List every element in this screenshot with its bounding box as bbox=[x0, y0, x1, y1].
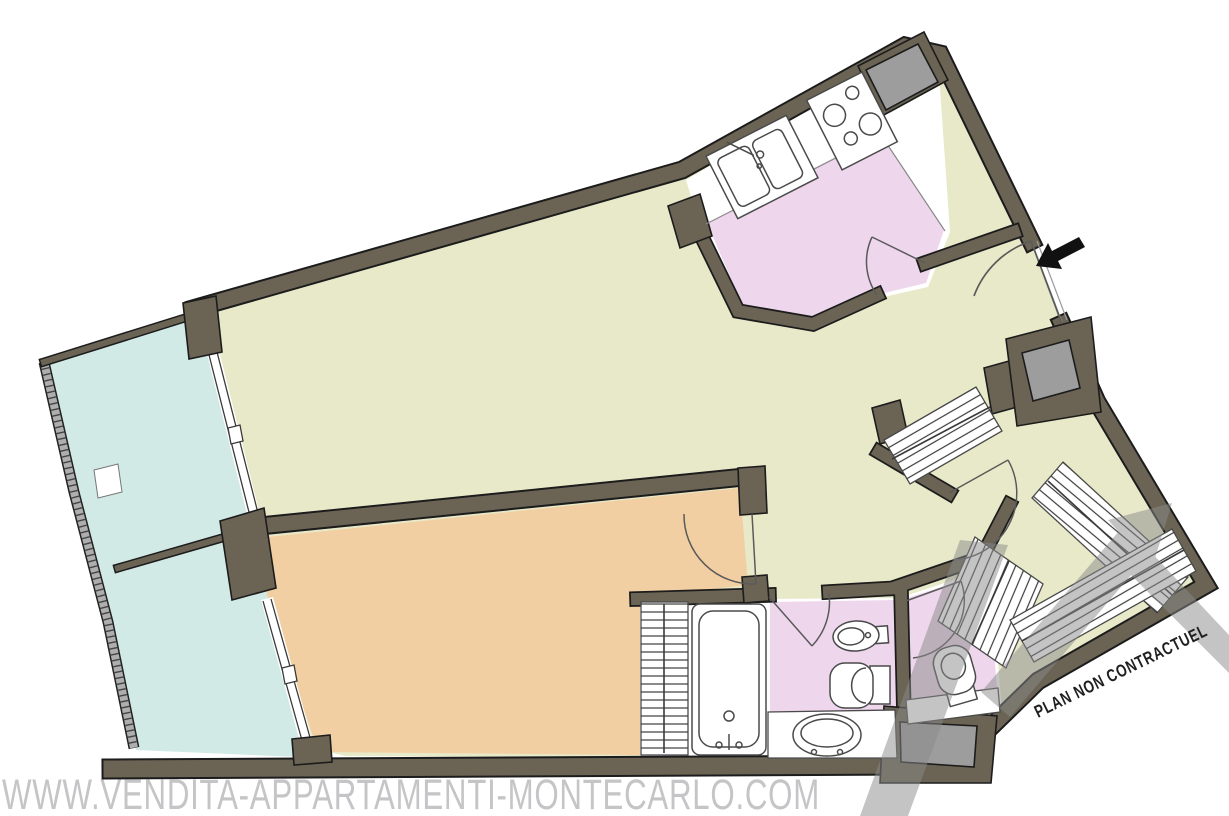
pillar-top-left bbox=[183, 296, 222, 359]
floor-plan-page: PLAN NON CONTRACTUEL WWW.VENDITA-APPARTA… bbox=[0, 0, 1229, 816]
floor-plan-drawing: PLAN NON CONTRACTUEL WWW.VENDITA-APPARTA… bbox=[0, 0, 1229, 816]
washbasin-icon bbox=[768, 710, 897, 758]
toilet-icon bbox=[830, 663, 890, 708]
bathtub-icon bbox=[692, 604, 766, 755]
pillar-bedroom-door-top bbox=[738, 466, 767, 515]
bathtub-outer bbox=[692, 604, 766, 755]
living-window-latch bbox=[228, 425, 243, 444]
bedroom-window-latch bbox=[282, 665, 297, 684]
watermark-url-text: WWW.VENDITA-APPARTAMENTI-MONTECARLO.COM bbox=[2, 771, 820, 816]
railing-joint bbox=[94, 464, 122, 498]
entry-arrow-icon bbox=[1036, 237, 1085, 269]
bathroom-closet bbox=[641, 602, 688, 755]
pillar-bedroom-bottom bbox=[292, 735, 332, 765]
basin-outer bbox=[793, 714, 861, 756]
bottom-wall bbox=[112, 765, 912, 769]
